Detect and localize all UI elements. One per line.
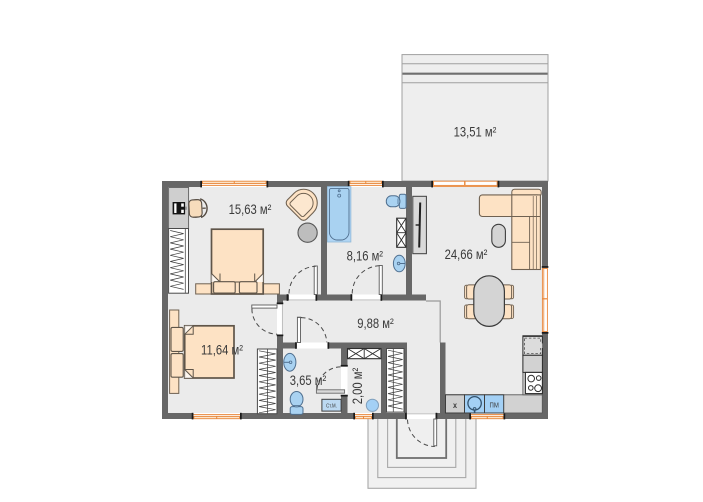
svg-text:13,51 м²: 13,51 м² [454, 125, 497, 140]
svg-text:9,88 м²: 9,88 м² [357, 316, 393, 331]
svg-text:x: x [453, 400, 458, 410]
svg-text:2,00 м²: 2,00 м² [350, 368, 365, 404]
svg-text:3,65 м²: 3,65 м² [290, 373, 326, 388]
svg-text:ПМ: ПМ [490, 402, 500, 410]
svg-text:Ст.М.: Ст.М. [326, 403, 337, 410]
svg-text:15,63 м²: 15,63 м² [229, 202, 272, 217]
svg-text:8,16 м²: 8,16 м² [347, 248, 383, 263]
svg-text:11,64 м²: 11,64 м² [201, 342, 243, 357]
svg-text:24,66 м²: 24,66 м² [445, 247, 488, 262]
